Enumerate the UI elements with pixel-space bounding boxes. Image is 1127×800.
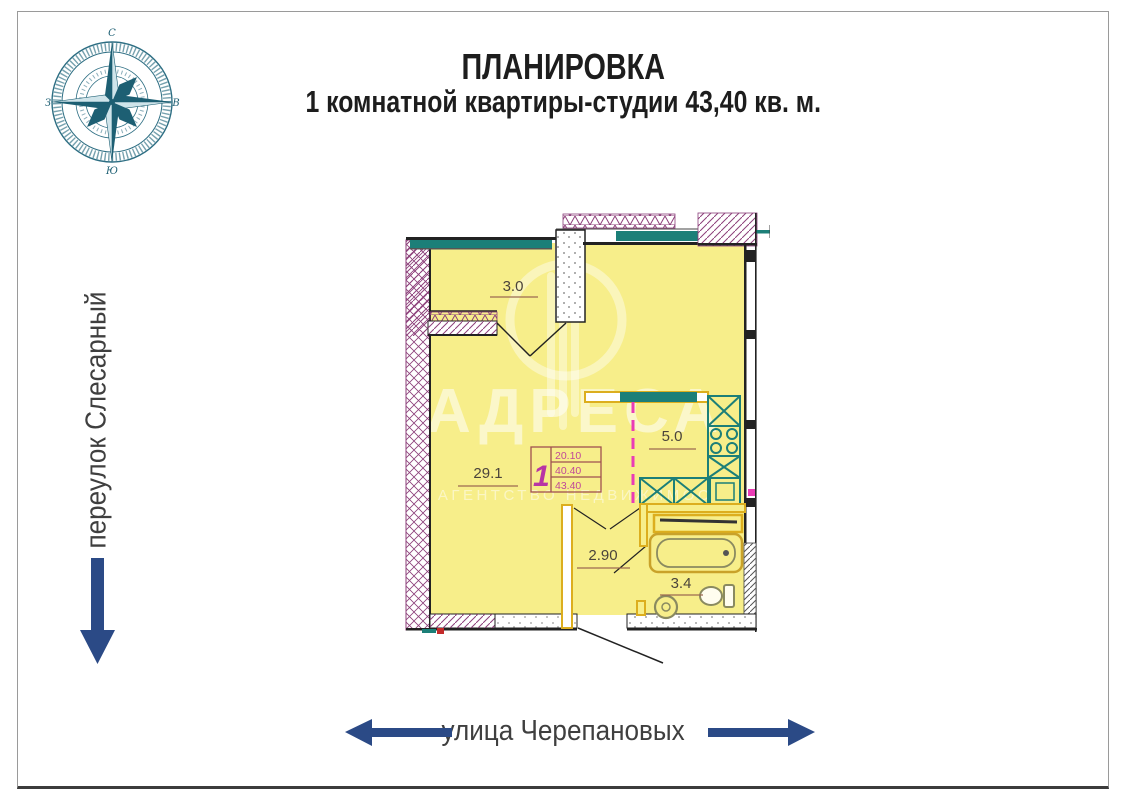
street-arrows — [340, 714, 820, 750]
loggia-window — [410, 240, 552, 248]
bottom-red-mark — [437, 628, 444, 634]
arrow-down — [75, 558, 121, 668]
page-title-text: ПЛАНИРОВКА — [462, 46, 666, 88]
arrow-right — [708, 719, 815, 746]
bathroom-area-label: 3.4 — [671, 575, 692, 592]
entrance-door-swing — [578, 628, 663, 663]
compass-south-label: Ю — [105, 166, 118, 176]
compass-north-label: С — [108, 28, 116, 39]
kitchen-area-label: 5.0 — [662, 428, 683, 445]
arrow-left — [345, 719, 452, 746]
floor-plan: АДРЕСА АГЕНТСТВО НЕДВИЖИМОС — [398, 200, 770, 672]
page-subtitle-text: 1 комнатной квартиры-студии 43,40 кв. м. — [306, 84, 822, 120]
toilet — [700, 587, 722, 605]
flyer-page: С В Ю З ПЛАНИРОВКА 1 комнатной квартиры-… — [0, 0, 1127, 800]
apartment-number: 1 — [533, 460, 550, 493]
living-window — [616, 231, 700, 241]
wall-bottom — [406, 614, 757, 663]
page-title: ПЛАНИРОВКА — [0, 46, 1127, 88]
street-label-left: переулок Слесарный — [81, 277, 114, 563]
loggia-area-label: 3.0 — [503, 278, 524, 295]
bottom-teal-mark — [422, 629, 436, 633]
living-area-label: 29.1 — [473, 465, 502, 482]
wall-right — [744, 213, 757, 632]
stamp-living-area: 20.10 — [555, 450, 581, 462]
bathroom-vanity — [654, 515, 742, 532]
hallway-area-label: 2.90 — [588, 547, 617, 564]
stamp-total-area: 43.40 — [555, 480, 581, 492]
street-label-left-text: переулок Слесарный — [81, 291, 114, 548]
stamp-area: 40.40 — [555, 465, 581, 477]
wall-left — [406, 240, 430, 630]
floor-drain — [655, 596, 677, 618]
page-subtitle: 1 комнатной квартиры-студии 43,40 кв. м. — [0, 84, 1127, 120]
